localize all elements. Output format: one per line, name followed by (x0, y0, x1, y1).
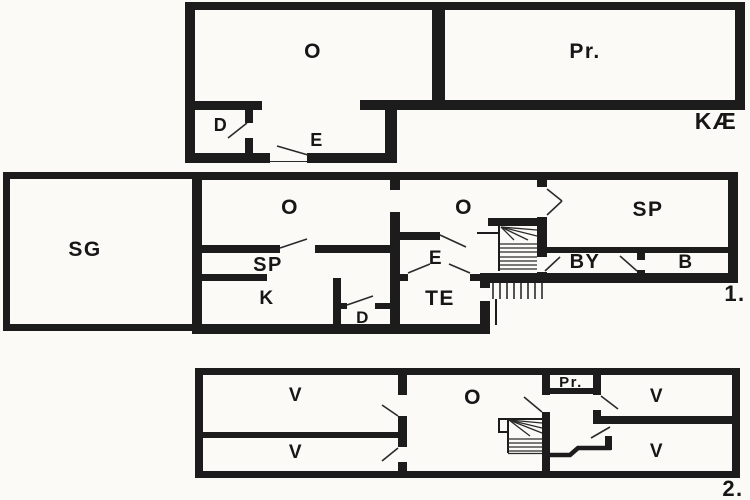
wall (732, 368, 740, 478)
room-label-first-b: B (678, 252, 693, 273)
room-label-first-te: TE (425, 287, 455, 310)
door-swing (228, 123, 247, 138)
door-swing (449, 264, 470, 273)
room-label-first-e: E (429, 248, 443, 269)
wall (480, 273, 738, 283)
door-swing (440, 235, 466, 247)
room-label-basement-d: D (214, 115, 229, 135)
door-swing (280, 239, 307, 248)
room-label-second-pr: Pr. (559, 374, 583, 391)
wall (333, 278, 341, 334)
wall (185, 101, 262, 110)
wall (375, 303, 390, 309)
floor-first: SG O O SP K D E TE SP BY B 1. (3, 172, 746, 334)
wall (480, 283, 490, 288)
floor-second: V V O Pr. V V 2. (195, 368, 744, 500)
wall (432, 2, 445, 105)
room-label-second-v1: V (289, 385, 303, 406)
room-label-first-sg: SG (68, 238, 101, 261)
wall (637, 270, 645, 275)
wall (315, 245, 390, 253)
exterior-staircase (493, 283, 542, 325)
floor-tag-second: 2. (722, 476, 743, 500)
floor-tag-basement: KÆ (695, 108, 738, 134)
wall (195, 368, 203, 478)
wall-notch (548, 448, 611, 455)
floor-tag-first: 1. (724, 281, 745, 306)
door-swing (408, 264, 430, 273)
door-swing (382, 405, 398, 416)
wall (3, 324, 193, 331)
staircase (499, 419, 542, 454)
wall (470, 274, 483, 281)
room-label-basement-e: E (310, 130, 324, 150)
door-swing (382, 448, 398, 461)
room-label-basement-pr: Pr. (569, 40, 600, 63)
door-swing (524, 397, 542, 412)
wall (637, 253, 645, 260)
door-swing (545, 257, 560, 271)
wall (398, 462, 407, 478)
wall (537, 172, 547, 187)
wall (542, 368, 550, 395)
room-label-second-o: O (464, 386, 482, 409)
stair-landing (499, 419, 508, 432)
wall (203, 432, 398, 438)
wall (398, 368, 407, 395)
wall (3, 172, 193, 179)
wall (593, 368, 601, 395)
wall (360, 100, 745, 110)
room-label-first-k: K (259, 288, 274, 309)
wall (390, 212, 400, 334)
staircase (477, 218, 545, 271)
wall (542, 412, 550, 478)
door-swing (347, 296, 373, 305)
wall (480, 301, 490, 334)
wall (195, 471, 740, 478)
wall (3, 172, 10, 331)
wall (198, 245, 280, 253)
wall (593, 416, 732, 424)
wall (390, 232, 440, 240)
room-label-first-sp1: SP (253, 254, 283, 276)
wall (385, 103, 397, 163)
floor-plan: O Pr. D E KÆ (0, 0, 750, 500)
wall (245, 110, 253, 123)
wall (390, 172, 400, 190)
wall (537, 272, 547, 283)
wall (398, 416, 407, 447)
door-swing (620, 256, 637, 271)
wall (735, 2, 745, 110)
wall (341, 303, 347, 309)
room-label-second-v3: V (650, 386, 664, 407)
room-label-second-v4: V (650, 441, 664, 462)
room-label-first-by: BY (570, 251, 601, 273)
wall (195, 368, 740, 375)
wall (185, 2, 745, 10)
wall (728, 172, 738, 283)
door-swing (547, 189, 562, 201)
floor-basement: O Pr. D E KÆ (185, 2, 745, 163)
wall (488, 218, 545, 226)
door-swing (547, 201, 562, 215)
wall (185, 2, 195, 163)
room-label-first-o1: O (281, 196, 299, 219)
floor-plan-canvas: O Pr. D E KÆ (0, 0, 750, 500)
wall (185, 153, 270, 163)
door-swing (601, 396, 618, 409)
wall (307, 153, 397, 163)
wall (390, 274, 408, 281)
room-label-first-sp2: SP (632, 198, 663, 221)
room-label-basement-o: O (304, 40, 322, 63)
room-label-second-v2: V (289, 442, 303, 463)
room-label-first-d: D (356, 308, 370, 327)
room-label-first-o2: O (455, 196, 473, 219)
door-swing (277, 146, 308, 155)
wall (192, 172, 738, 180)
